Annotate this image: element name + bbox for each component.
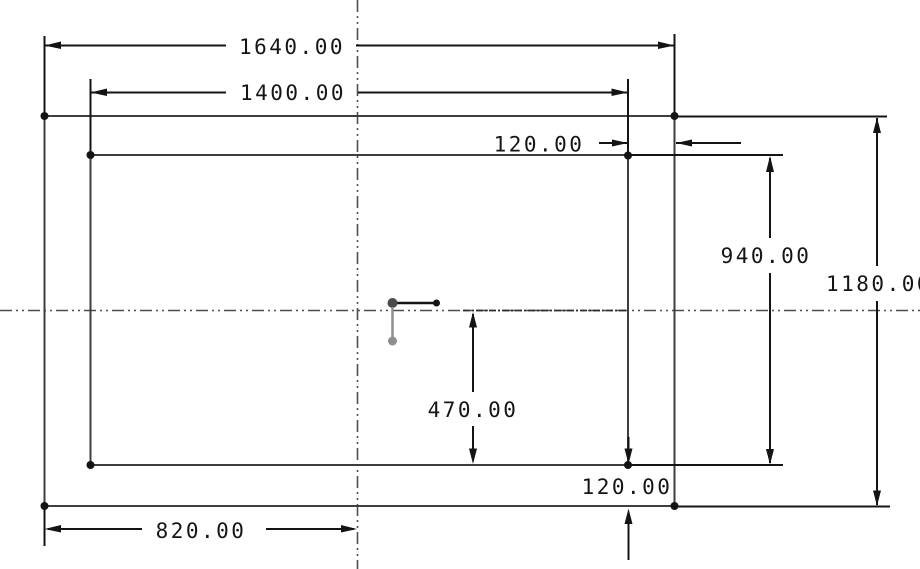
arrowhead-right-icon bbox=[341, 525, 357, 533]
vertex-dot bbox=[624, 152, 632, 160]
dim-label-inner-height: 940.00 bbox=[721, 244, 812, 268]
arrowhead-right-icon bbox=[658, 42, 675, 50]
arrowhead-left-icon bbox=[676, 140, 692, 147]
vertex-dot bbox=[41, 112, 49, 120]
vertex-dot bbox=[671, 112, 679, 120]
vertex-dot bbox=[87, 151, 95, 159]
arrowhead-right-icon bbox=[612, 89, 629, 97]
arrowhead-right-icon bbox=[612, 140, 628, 147]
arrowhead-left-icon bbox=[45, 525, 62, 533]
vertex-dot bbox=[87, 461, 95, 469]
dim-label-inner-width: 1400.00 bbox=[240, 81, 346, 105]
dim-label-outer-width: 1640.00 bbox=[239, 35, 345, 59]
vertex-dot bbox=[671, 502, 679, 510]
arrowhead-down-icon bbox=[469, 449, 477, 465]
arrowhead-up-icon bbox=[625, 509, 633, 525]
arrowhead-left-icon bbox=[45, 42, 62, 50]
dim-label-bottom-right-offset: 120.00 bbox=[582, 475, 673, 499]
arrowhead-up-icon bbox=[766, 156, 774, 172]
center-marker-end-dot bbox=[433, 300, 440, 307]
dim-label-outer-height: 1180.00 bbox=[826, 272, 920, 296]
arrowhead-up-icon bbox=[873, 118, 881, 134]
center-point-dot bbox=[388, 298, 398, 308]
vertex-dot bbox=[41, 502, 49, 510]
arrowhead-down-icon bbox=[766, 449, 774, 465]
dim-label-center-to-bottom: 470.00 bbox=[428, 398, 519, 422]
vertex-dot bbox=[624, 461, 632, 469]
cad-drawing-canvas[interactable]: 1640.00 1400.00 120.00 940.00 1180.00 47… bbox=[0, 0, 920, 569]
cad-drawing: 1640.00 1400.00 120.00 940.00 1180.00 47… bbox=[0, 0, 920, 569]
dim-label-half-width: 820.00 bbox=[156, 519, 247, 543]
arrowhead-up-icon bbox=[469, 312, 477, 328]
dim-label-top-right-offset: 120.00 bbox=[494, 133, 585, 157]
arrowhead-down-icon bbox=[873, 491, 881, 507]
construction-point-dot bbox=[388, 337, 397, 346]
arrowhead-left-icon bbox=[91, 89, 108, 97]
